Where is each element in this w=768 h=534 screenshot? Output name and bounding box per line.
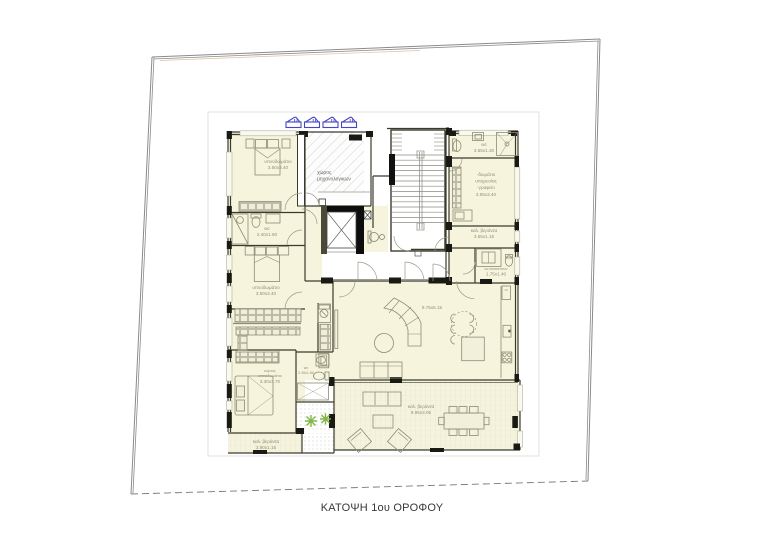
svg-text:3.55x1.15: 3.55x1.15 (474, 234, 495, 239)
svg-text:2.45x1.60: 2.45x1.60 (298, 371, 314, 375)
svg-text:καλ. βεράντα: καλ. βεράντα (253, 438, 280, 444)
svg-text:καλ. βεράντα: καλ. βεράντα (471, 227, 498, 233)
svg-text:-γραφείο: -γραφείο (477, 185, 495, 190)
svg-text:wc επισκεπτών: wc επισκεπτών (485, 267, 508, 271)
svg-text:υπηρεσίας: υπηρεσίας (475, 179, 497, 184)
svg-text:9.95x3.05: 9.95x3.05 (411, 410, 432, 415)
svg-text:3.55x3.40: 3.55x3.40 (476, 192, 497, 197)
svg-text:υπνοδωμάτιο: υπνοδωμάτιο (264, 158, 292, 164)
svg-text:3.30x3.70: 3.30x3.70 (260, 379, 281, 384)
svg-text:χώρος: χώρος (317, 169, 332, 176)
svg-text:ΚΑΤΟΨΗ 1ου ΟΡΟΦΟΥ: ΚΑΤΟΨΗ 1ου ΟΡΟΦΟΥ (321, 502, 444, 514)
svg-text:μηχανολογικων: μηχανολογικων (317, 177, 351, 183)
svg-text:3.50x3.40: 3.50x3.40 (268, 165, 289, 170)
svg-text:wc: wc (264, 226, 270, 231)
svg-text:3.55x1.30: 3.55x1.30 (474, 148, 495, 153)
svg-text:υπνοδωμάτιο: υπνοδωμάτιο (252, 284, 280, 290)
svg-text:wc: wc (481, 142, 487, 147)
svg-text:υπνοδωμάτιο: υπνοδωμάτιο (258, 373, 283, 378)
svg-text:3.90x1.15: 3.90x1.15 (256, 445, 277, 450)
svg-text:3.50x3.40: 3.50x3.40 (256, 291, 277, 296)
svg-text:9.75x5.15: 9.75x5.15 (422, 305, 443, 310)
svg-text:wc: wc (304, 366, 309, 370)
svg-text:1.75x1.40: 1.75x1.40 (486, 272, 507, 277)
svg-text:καλ. βεράντα: καλ. βεράντα (408, 403, 435, 409)
svg-text:2.40x1.60: 2.40x1.60 (257, 232, 278, 237)
svg-text:-δωμάτιο: -δωμάτιο (477, 171, 496, 177)
